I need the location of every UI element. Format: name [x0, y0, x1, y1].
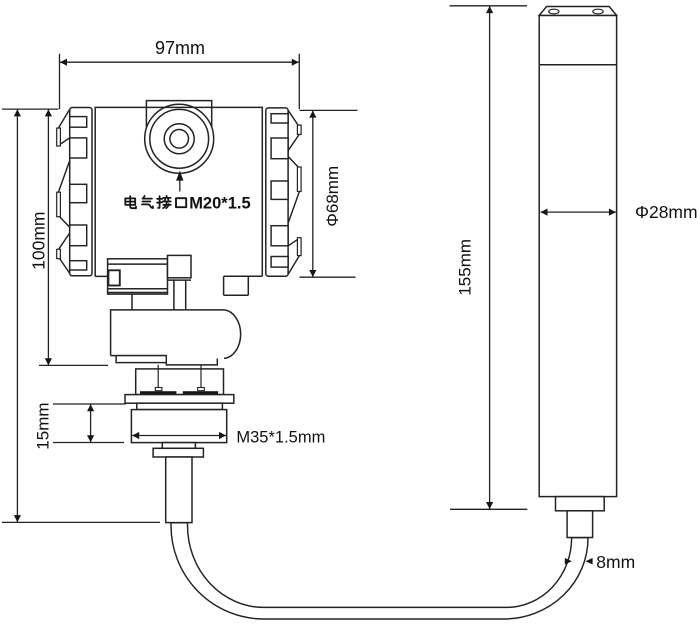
svg-text:155mm: 155mm — [456, 239, 475, 296]
svg-text:Φ28mm: Φ28mm — [635, 202, 698, 222]
svg-text:97mm: 97mm — [155, 38, 205, 58]
svg-text:M35*1.5mm: M35*1.5mm — [236, 429, 325, 447]
svg-text:M20*1.5: M20*1.5 — [189, 195, 250, 213]
svg-text:Φ68mm: Φ68mm — [323, 166, 342, 227]
svg-text:15mm: 15mm — [34, 402, 53, 449]
svg-text:100mm: 100mm — [28, 212, 48, 270]
svg-text:8mm: 8mm — [596, 552, 635, 572]
